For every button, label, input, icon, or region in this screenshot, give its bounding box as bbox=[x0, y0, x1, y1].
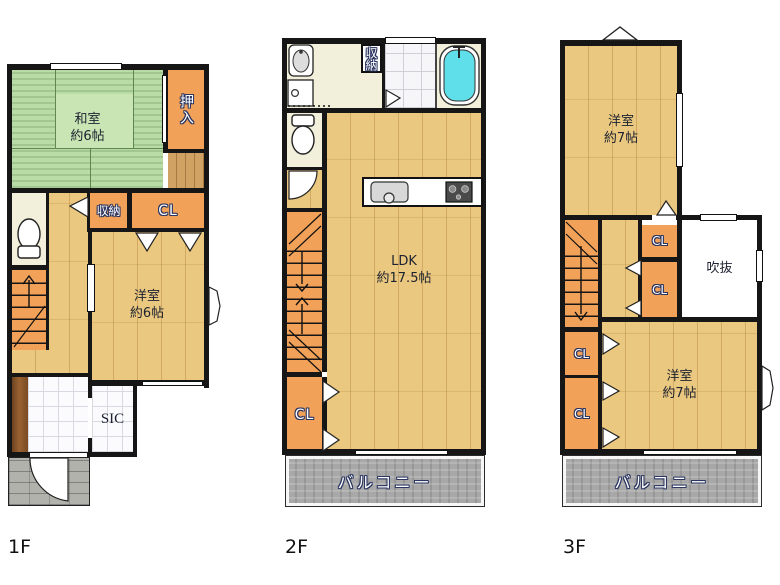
wall bbox=[560, 327, 602, 332]
stairs-steps bbox=[565, 245, 598, 325]
room-name: 洋室 bbox=[134, 289, 160, 304]
floor-label-1f: 1F bbox=[8, 536, 31, 558]
room-label-fukinuke: 吹抜 bbox=[706, 261, 732, 278]
stairs-3f bbox=[565, 220, 598, 327]
wall bbox=[322, 113, 327, 212]
window-icon bbox=[50, 63, 122, 70]
stairs-steps bbox=[12, 272, 46, 344]
room-bedroom-top-3f: 洋室 約7帖 bbox=[565, 46, 677, 215]
stairs-2f bbox=[287, 212, 322, 372]
wall bbox=[642, 257, 677, 262]
wall bbox=[322, 377, 327, 452]
closet-label-shuno-2f: 収納 bbox=[363, 47, 380, 71]
room-size: 約17.5帖 bbox=[377, 271, 432, 286]
wall bbox=[204, 64, 209, 388]
wall bbox=[598, 327, 602, 449]
wall bbox=[677, 220, 682, 317]
balcony-label-2f: バルコニー bbox=[338, 469, 433, 493]
wall bbox=[7, 188, 209, 193]
closet-label: CL bbox=[574, 407, 589, 421]
closet-label-cl: CL bbox=[158, 203, 178, 219]
tatami-line bbox=[55, 70, 56, 148]
room-size: 約7帖 bbox=[604, 131, 638, 146]
wall bbox=[46, 193, 49, 350]
balcony-label-3f: バルコニー bbox=[615, 469, 710, 493]
room-size: 約7帖 bbox=[662, 386, 696, 401]
closet-cl-left-top: CL bbox=[565, 332, 598, 375]
room-name: LDK bbox=[391, 254, 417, 269]
gable-vent-icon bbox=[603, 27, 637, 40]
window-icon bbox=[643, 450, 737, 455]
closet-cl-1f: CL bbox=[132, 193, 204, 228]
room-fukinuke-void: 吹抜 bbox=[682, 222, 757, 317]
closet-cl-left-bottom: CL bbox=[565, 378, 598, 449]
room-label-ldk: LDK 約17.5帖 bbox=[377, 254, 432, 288]
closet-label-oshiire: 押入 bbox=[176, 94, 196, 126]
door-opening bbox=[652, 215, 676, 220]
wall bbox=[598, 317, 762, 322]
closet-shuno-2f: 収納 bbox=[361, 44, 382, 73]
wall bbox=[282, 108, 486, 113]
balcony-3f: バルコニー bbox=[562, 455, 762, 507]
window-icon bbox=[355, 450, 448, 455]
hall-2f bbox=[287, 170, 322, 208]
room-bathroom bbox=[385, 44, 435, 108]
wall bbox=[133, 386, 137, 457]
room-bath-tub bbox=[437, 44, 481, 108]
wall bbox=[127, 193, 132, 228]
room-label-bedroom-bottom: 洋室 約7帖 bbox=[662, 369, 696, 403]
closet-label-cl-2f: CL bbox=[295, 407, 315, 423]
tatami-line bbox=[90, 148, 91, 188]
wood-alcove bbox=[168, 153, 204, 188]
wall bbox=[560, 40, 682, 46]
hall-3f bbox=[602, 220, 638, 322]
wall bbox=[435, 44, 437, 108]
wall bbox=[565, 375, 598, 378]
door-opening bbox=[88, 398, 92, 438]
hall-1f bbox=[46, 193, 88, 377]
floor-label-3f: 3F bbox=[563, 536, 586, 558]
room-label-yoshitsu-1f: 洋室 約6帖 bbox=[130, 289, 164, 323]
closet-cl-mid-bottom: CL bbox=[642, 262, 677, 317]
room-toilet-1f bbox=[12, 193, 46, 266]
floor-label-2f: 2F bbox=[285, 536, 308, 558]
room-yoshitsu-1f: 洋室 約6帖 bbox=[90, 232, 204, 380]
sliding-door bbox=[162, 75, 167, 143]
floorplan-canvas: 和室 約6帖 押入 収納 CL 洋室 約6帖 SIC bbox=[0, 0, 780, 585]
closet-cl-mid-top: CL bbox=[642, 225, 677, 257]
room-bedroom-bottom-3f: 洋室 約7帖 bbox=[602, 322, 757, 449]
window-icon bbox=[142, 381, 203, 386]
wall bbox=[7, 373, 90, 377]
wall bbox=[287, 167, 322, 170]
closet-label-shuno: 収納 bbox=[96, 202, 120, 219]
wall bbox=[481, 38, 486, 455]
room-oshiire: 押入 bbox=[168, 70, 204, 149]
wall bbox=[12, 265, 46, 270]
shoe-cabinet bbox=[12, 377, 28, 452]
window-icon bbox=[700, 214, 737, 221]
wall bbox=[163, 149, 209, 153]
room-washitsu: 和室 約6帖 bbox=[12, 70, 163, 188]
room-label-washitsu: 和室 約6帖 bbox=[70, 112, 104, 146]
wall bbox=[322, 212, 327, 372]
closet-cl-2f: CL bbox=[287, 377, 322, 452]
wall bbox=[382, 44, 385, 108]
room-label-sic: SIC bbox=[101, 411, 124, 428]
tatami-line bbox=[133, 70, 134, 148]
window-icon bbox=[676, 93, 683, 167]
closet-shuno-1f: 収納 bbox=[90, 193, 127, 228]
window-icon bbox=[385, 37, 436, 44]
sliding-door bbox=[87, 264, 95, 312]
closet-label: CL bbox=[652, 283, 667, 297]
porch bbox=[8, 457, 90, 506]
room-name: 洋室 bbox=[666, 369, 692, 384]
room-ldk: LDK 約17.5帖 bbox=[327, 113, 481, 449]
door-opening bbox=[30, 453, 87, 457]
wall bbox=[287, 372, 322, 377]
closet-label: CL bbox=[574, 347, 589, 361]
room-sic: SIC bbox=[92, 386, 133, 452]
room-size: 約6帖 bbox=[130, 306, 164, 321]
room-name: 洋室 bbox=[608, 114, 634, 129]
room-size: 約6帖 bbox=[70, 129, 104, 144]
tatami-line bbox=[12, 148, 163, 149]
wall bbox=[287, 208, 322, 212]
room-label-bedroom-top: 洋室 約7帖 bbox=[604, 114, 638, 148]
wall bbox=[87, 228, 209, 232]
room-toilet-2f bbox=[287, 113, 322, 167]
closet-label: CL bbox=[652, 234, 667, 248]
wall bbox=[87, 193, 90, 228]
window-icon bbox=[756, 250, 763, 282]
balcony-2f: バルコニー bbox=[285, 455, 485, 507]
wall bbox=[7, 64, 12, 457]
stairs-steps bbox=[287, 240, 322, 368]
entry-genkan bbox=[28, 377, 88, 452]
wall bbox=[598, 220, 602, 327]
wall bbox=[638, 220, 642, 317]
stairs-1f bbox=[12, 270, 46, 350]
room-name: 和室 bbox=[74, 112, 100, 127]
wall bbox=[560, 40, 565, 455]
wall bbox=[282, 38, 287, 455]
